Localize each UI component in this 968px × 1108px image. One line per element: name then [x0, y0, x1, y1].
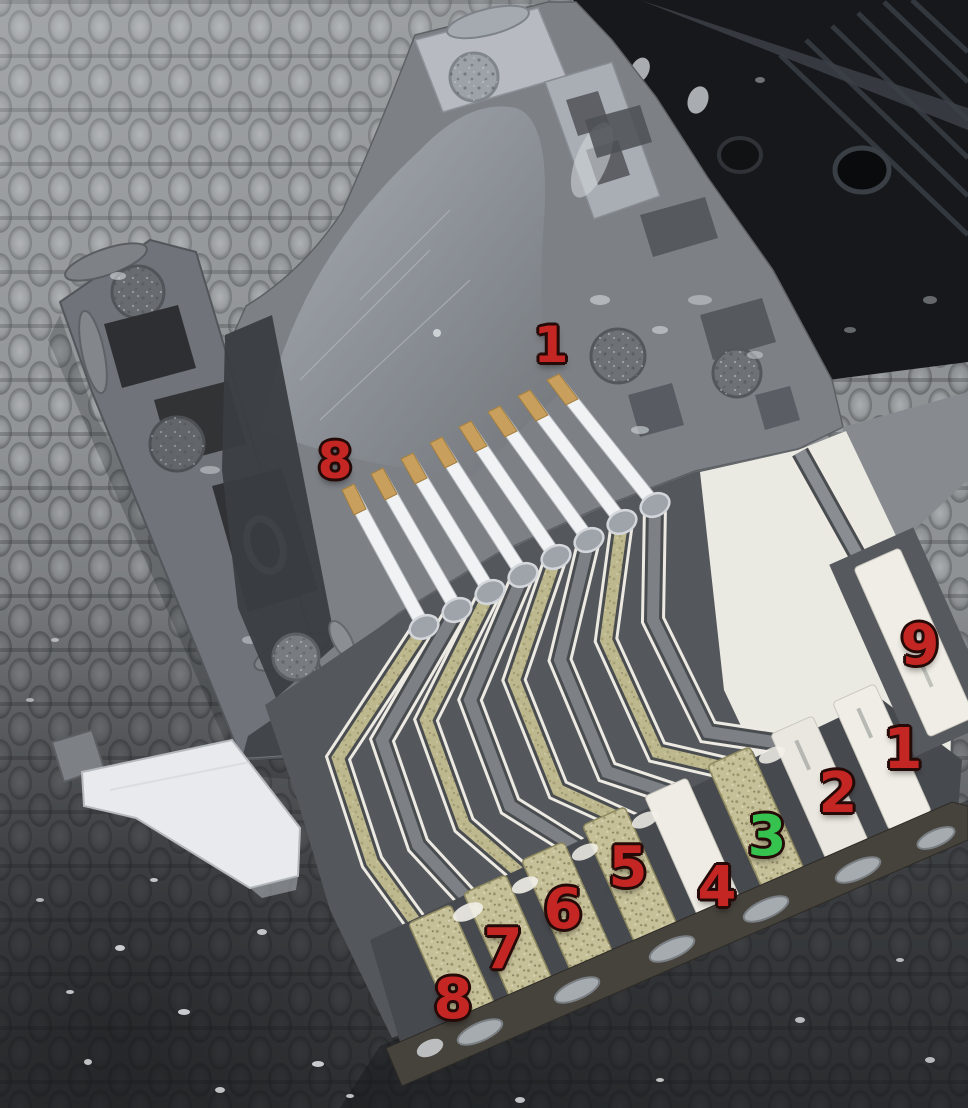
adapter-photo-scene [0, 0, 968, 1108]
shell-screw-hole [835, 148, 889, 192]
photo-stage: 18912345678 [0, 0, 968, 1108]
dust-fleck [433, 329, 441, 337]
shell-hole-2 [719, 138, 761, 172]
